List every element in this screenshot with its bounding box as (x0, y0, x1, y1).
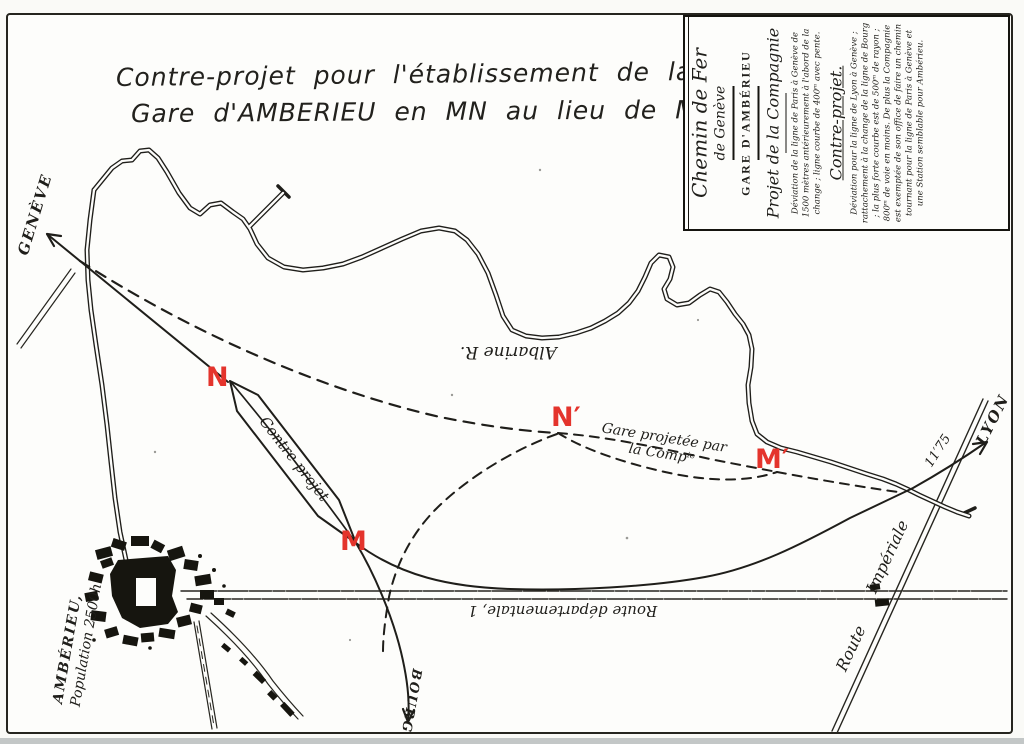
legend-rule (785, 93, 786, 153)
legend-box: Chemin de Fer de Genève GARE D'AMBÉRIEU … (683, 15, 1010, 231)
legend-rule (732, 86, 734, 160)
point-n-prime-label: N′ (551, 402, 581, 433)
legend-header-line2: de Genève (712, 15, 728, 231)
point-m-prime-label: M′ (755, 444, 789, 475)
legend-content: Chemin de Fer de Genève GARE D'AMBÉRIEU … (683, 15, 1010, 231)
point-n-label: N (206, 362, 229, 393)
legend-counter-project-text: Déviation pour la ligne de Lyon à Genève… (849, 22, 926, 224)
legend-header-line1: Chemin de Fer (687, 15, 711, 231)
legend-company-project-title: Projet de la Compagnie (763, 15, 782, 231)
map-title-line2: Gare d'AMBERIEU en MN au lieu de M′N′. (131, 95, 740, 128)
scan-shadow (0, 738, 1024, 744)
legend-station-name: GARE D'AMBÉRIEU (738, 15, 753, 231)
legend-company-project-text: Déviation de la ligne de Paris à Genève … (790, 22, 823, 224)
map-title-line1: Contre-projet pour l'établissement de la (116, 57, 692, 92)
crossing-building (875, 598, 890, 606)
scanned-map-page: Contre-projet pour l'établissement de la… (0, 0, 1024, 744)
route-departementale-label: Route départementale, 1 (468, 602, 657, 620)
legend-rule (757, 86, 759, 160)
point-m-label: M (340, 526, 367, 557)
legend-counter-project-title: Contre-projet. (826, 15, 845, 231)
river-name-label: Albarine R. (460, 342, 557, 362)
